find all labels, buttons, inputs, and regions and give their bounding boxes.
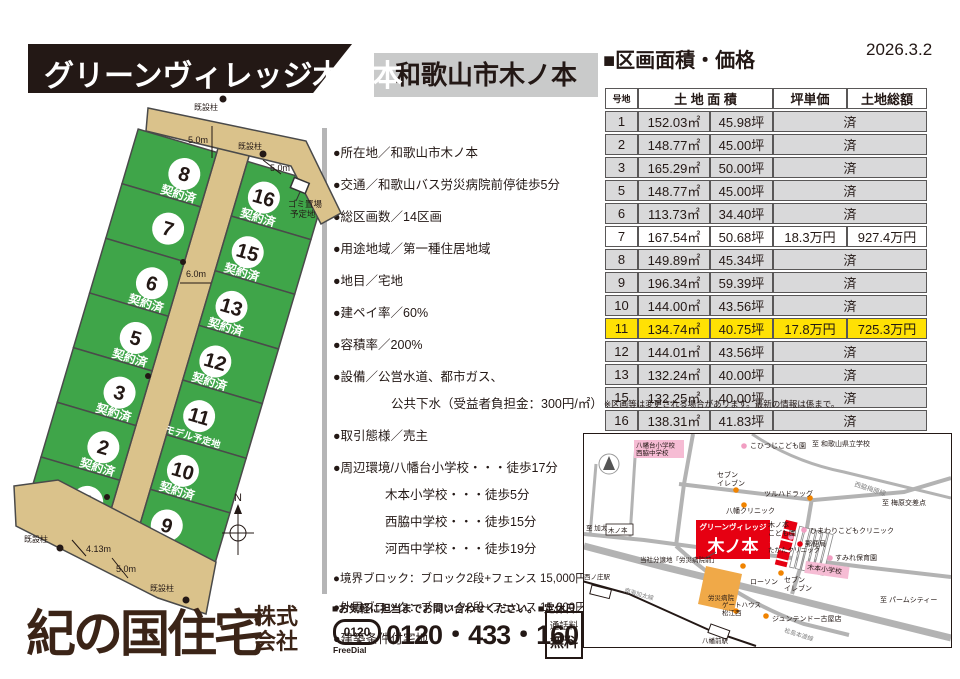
detail-item: 西脇中学校・・・徒歩15分: [333, 511, 585, 530]
pole-label: 既設柱: [150, 583, 174, 593]
freedial-number-badge: 0120: [333, 619, 381, 645]
map-label: イレブン: [784, 584, 812, 593]
company-suffix-line2: 会社: [254, 629, 298, 654]
table-row: 3165.29㎡50.00坪済: [605, 157, 927, 178]
table-header: 号地: [605, 88, 638, 109]
map-label: 八幡前駅: [702, 636, 729, 645]
map-label: ひまわりこどもクリニック: [810, 527, 894, 535]
table-row: 6113.73㎡34.40坪済: [605, 203, 927, 224]
price-date: 2026.3.2: [866, 40, 932, 60]
detail-item: ●建ペイ率／60%: [333, 302, 585, 321]
location-box: 和歌山市木ノ本: [374, 53, 598, 97]
detail-item: ●交通／和歌山バス労災病院前停徒歩5分: [333, 174, 585, 193]
site-tab-label: グリーンヴィレッジ: [699, 522, 767, 532]
map-label: ツルハドラッグ: [764, 489, 813, 498]
table-note: ※区画等は変更される場合があります。最新の情報は係まで。: [604, 398, 839, 410]
detail-item: ●設備／公営水道、都市ガス、: [333, 366, 585, 385]
tollfree-badge: 通話料 無料: [545, 611, 583, 659]
property-details-list: ●所在地／和歌山市木ノ本●交通／和歌山バス労災病院前停徒歩5分●総区画数／14区…: [333, 142, 585, 647]
page-title: グリーンヴィレッジ木ノ本: [44, 51, 403, 95]
compass-n-label: N: [234, 492, 242, 504]
road-width-label: 5.0m: [270, 163, 290, 173]
detail-item: ●用途地域／第一種住居地域: [333, 238, 585, 257]
price-table: 号地土 地 面 積坪単価土地総額1152.03㎡45.98坪済2148.77㎡4…: [605, 86, 927, 433]
table-row: 5148.77㎡45.00坪済: [605, 180, 927, 201]
table-row: 11134.74㎡40.75坪17.8万円725.3万円: [605, 318, 927, 339]
detail-item: ●総区画数／14区画: [333, 206, 585, 225]
map-label: セブン: [784, 575, 805, 584]
company-suffix-line1: 株式: [254, 604, 298, 629]
map-label: 松江西: [722, 608, 742, 617]
road-width-label: 4.13m: [86, 544, 111, 554]
detail-item: ●周辺環境/八幡台小学校・・・徒歩17分: [333, 457, 585, 476]
table-row: 16138.31㎡41.83坪済: [605, 410, 927, 431]
boundary-dot: [180, 259, 186, 265]
road-width-label: 5.0m: [188, 135, 208, 145]
map-label: ローソン: [750, 579, 778, 586]
map-label: セブン: [717, 470, 738, 479]
station-marker: [590, 585, 612, 599]
detail-item: 公共下水（受益者負担金：300円/㎡）: [333, 393, 585, 412]
tollfree-line1: 通話料: [547, 618, 581, 632]
pole-label: 既設柱: [194, 102, 218, 112]
poi-dot: [733, 487, 739, 493]
access-map: 八幡台小学校西脇中学校木本小学校木ノ本グリーンヴィレッジ木ノ本こひつじこども園至…: [583, 433, 952, 648]
poi-dot: [740, 563, 746, 569]
tollfree-line2: 無料: [547, 632, 581, 652]
table-row: 13132.24㎡40.00坪済: [605, 364, 927, 385]
pole-label: 既設柱: [238, 141, 262, 151]
garbage-label: 予定地: [290, 209, 316, 219]
map-label: こひつじこども園: [750, 442, 806, 450]
intersection-sign-label: 木ノ本: [608, 526, 628, 535]
poi-dot: [797, 541, 803, 547]
poi-dot: [763, 613, 769, 619]
company-suffix: 株式 会社: [254, 604, 298, 655]
table-row: 2148.77㎡45.00坪済: [605, 134, 927, 155]
map-label: 至 パームシティー: [880, 596, 937, 604]
price-section-heading: ■区画面積・価格: [603, 44, 755, 73]
site-plan: 8契約済76契約済5契約済3契約済2契約済1契約済16契約済15契約済13契約済…: [0, 90, 370, 679]
table-row: 12144.01㎡43.56坪済: [605, 341, 927, 362]
road-width-label: 5.0m: [116, 564, 136, 574]
map-label: 木ノ本: [768, 520, 789, 529]
boundary-dot: [104, 494, 110, 500]
table-row: 10144.00㎡43.56坪済: [605, 295, 927, 316]
road-width-label: 6.0m: [186, 269, 206, 279]
boundary-dot: [145, 373, 151, 379]
station-marker: [708, 624, 730, 639]
poi-dot: [801, 527, 807, 533]
poi-dot: [827, 555, 833, 561]
map-label: 至 和歌山県立学校: [812, 439, 870, 448]
table-row: 8149.89㎡45.34坪済: [605, 249, 927, 270]
map-label: イレブン: [717, 479, 745, 488]
detail-item: ●境界ブロック：ブロック2段+フェンス 15,000円/m(税抜): [333, 570, 585, 586]
map-label: たかたクリニック: [768, 546, 820, 554]
company-logo: 紀の国住宅: [26, 594, 261, 666]
flyer-page: 8契約済76契約済5契約済3契約済2契約済1契約済16契約済15契約済13契約済…: [0, 0, 960, 679]
poi-dot: [741, 502, 747, 508]
map-label: すみれ保育園: [835, 553, 877, 562]
map-compass-needle: [603, 456, 615, 470]
map-label: 至 梅原交差点: [882, 498, 926, 507]
table-row: 7167.54㎡50.68坪18.3万円927.4万円: [605, 226, 927, 247]
pole-dot: [220, 96, 227, 103]
map-label: ジュンテンドー古屋店: [772, 614, 842, 623]
school-box-label: 西脇中学校: [636, 448, 669, 457]
table-row: 1152.03㎡45.98坪済: [605, 111, 927, 132]
poi-dot: [741, 443, 747, 449]
detail-item: ●容積率／200%: [333, 334, 585, 353]
poi-dot: [778, 570, 784, 576]
map-label: 当社分譲地「労災病院前」: [640, 555, 718, 564]
table-header: 坪単価: [773, 88, 847, 109]
freedial-label: FreeDial: [333, 645, 381, 655]
table-header: 土地総額: [847, 88, 927, 109]
pole-dot: [260, 151, 267, 158]
map-label: 至 加太: [586, 523, 608, 532]
freedial-icon: 0120 FreeDial: [333, 619, 381, 655]
detail-item: 河西中学校・・・徒歩19分: [333, 538, 585, 557]
detail-item: ●所在地／和歌山市木ノ本: [333, 142, 585, 161]
pole-label: 既設柱: [24, 534, 48, 544]
map-label: こども園: [768, 530, 796, 538]
table-row: 9196.34㎡59.39坪済: [605, 272, 927, 293]
map-label: 西ノ庄駅: [584, 572, 611, 581]
map-label: 八幡クリニック: [726, 506, 775, 515]
table-header: 土 地 面 積: [638, 88, 773, 109]
detail-item: ●地目／宅地: [333, 270, 585, 289]
detail-item: ●取引態様／売主: [333, 425, 585, 444]
garbage-label: ゴミ置場: [288, 199, 323, 209]
pole-dot: [57, 545, 64, 552]
map-label: 南海加太線: [623, 586, 654, 602]
map-label: 松島本渡線: [783, 626, 814, 643]
detail-item: 木本小学校・・・徒歩5分: [333, 484, 585, 503]
map-label: 労災病院: [708, 593, 735, 602]
school-box-label: 八幡台小学校: [636, 441, 676, 450]
